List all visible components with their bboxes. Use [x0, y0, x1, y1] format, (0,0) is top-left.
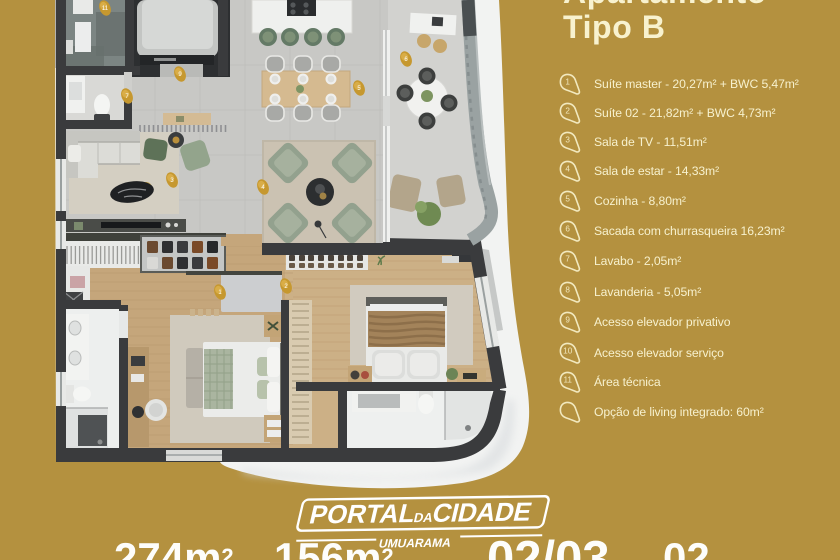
svg-text:5: 5 [565, 194, 570, 203]
svg-text:1: 1 [565, 77, 570, 86]
svg-text:2: 2 [565, 106, 570, 115]
svg-text:11: 11 [563, 375, 572, 384]
svg-text:4: 4 [565, 164, 570, 173]
svg-text:PORTAL: PORTAL [307, 498, 419, 529]
svg-text:CIDADE: CIDADE [430, 497, 535, 528]
svg-text:8: 8 [565, 285, 570, 294]
svg-text:11: 11 [102, 6, 109, 12]
svg-text:7: 7 [565, 254, 570, 263]
svg-text:10: 10 [563, 346, 573, 355]
svg-text:6: 6 [565, 224, 570, 233]
svg-text:3: 3 [565, 135, 570, 144]
svg-text:9: 9 [565, 315, 570, 324]
